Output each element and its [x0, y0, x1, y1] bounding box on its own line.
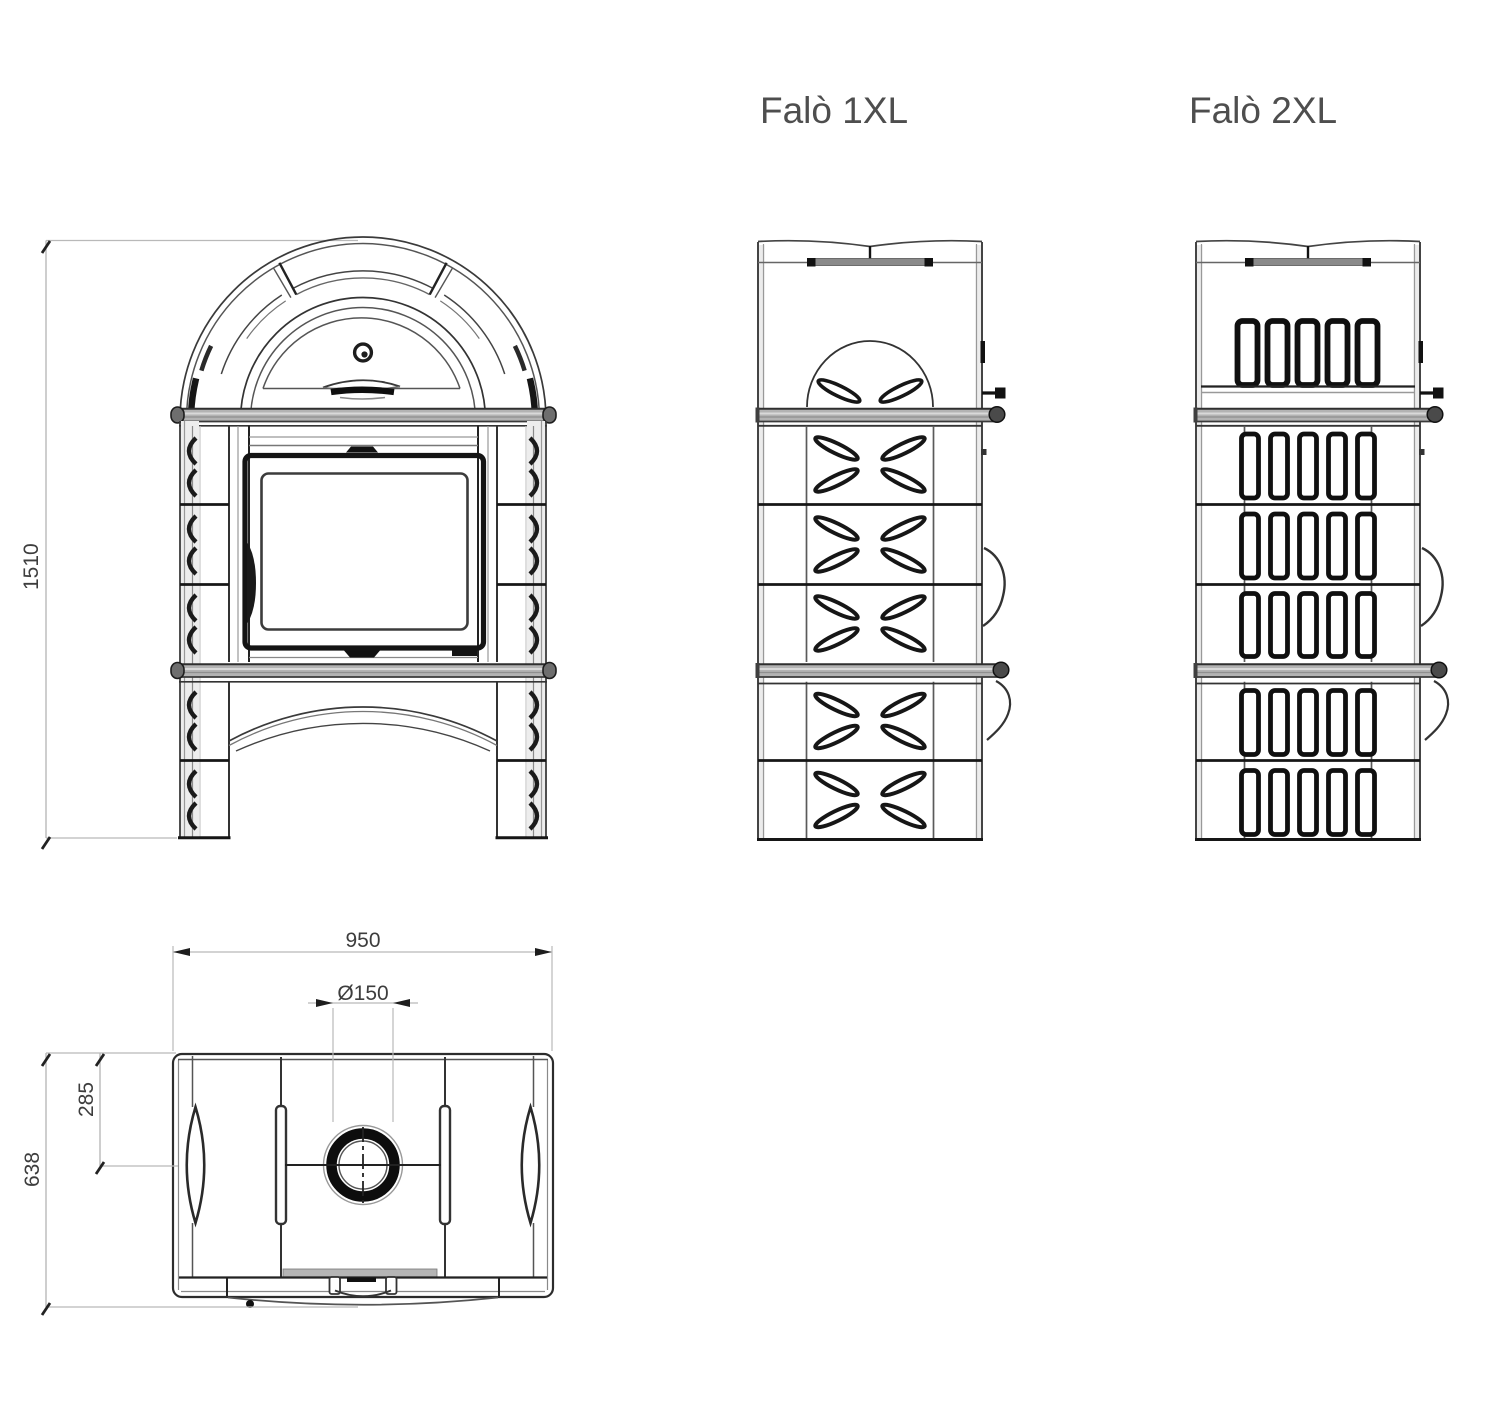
svg-text:Falò 2XL: Falò 2XL — [1189, 90, 1337, 131]
svg-text:638: 638 — [21, 1152, 44, 1187]
svg-text:285: 285 — [75, 1082, 98, 1117]
svg-text:950: 950 — [345, 929, 380, 952]
svg-text:1510: 1510 — [20, 543, 43, 590]
svg-text:Ø150: Ø150 — [337, 982, 388, 1005]
svg-text:Falò 1XL: Falò 1XL — [760, 90, 908, 131]
